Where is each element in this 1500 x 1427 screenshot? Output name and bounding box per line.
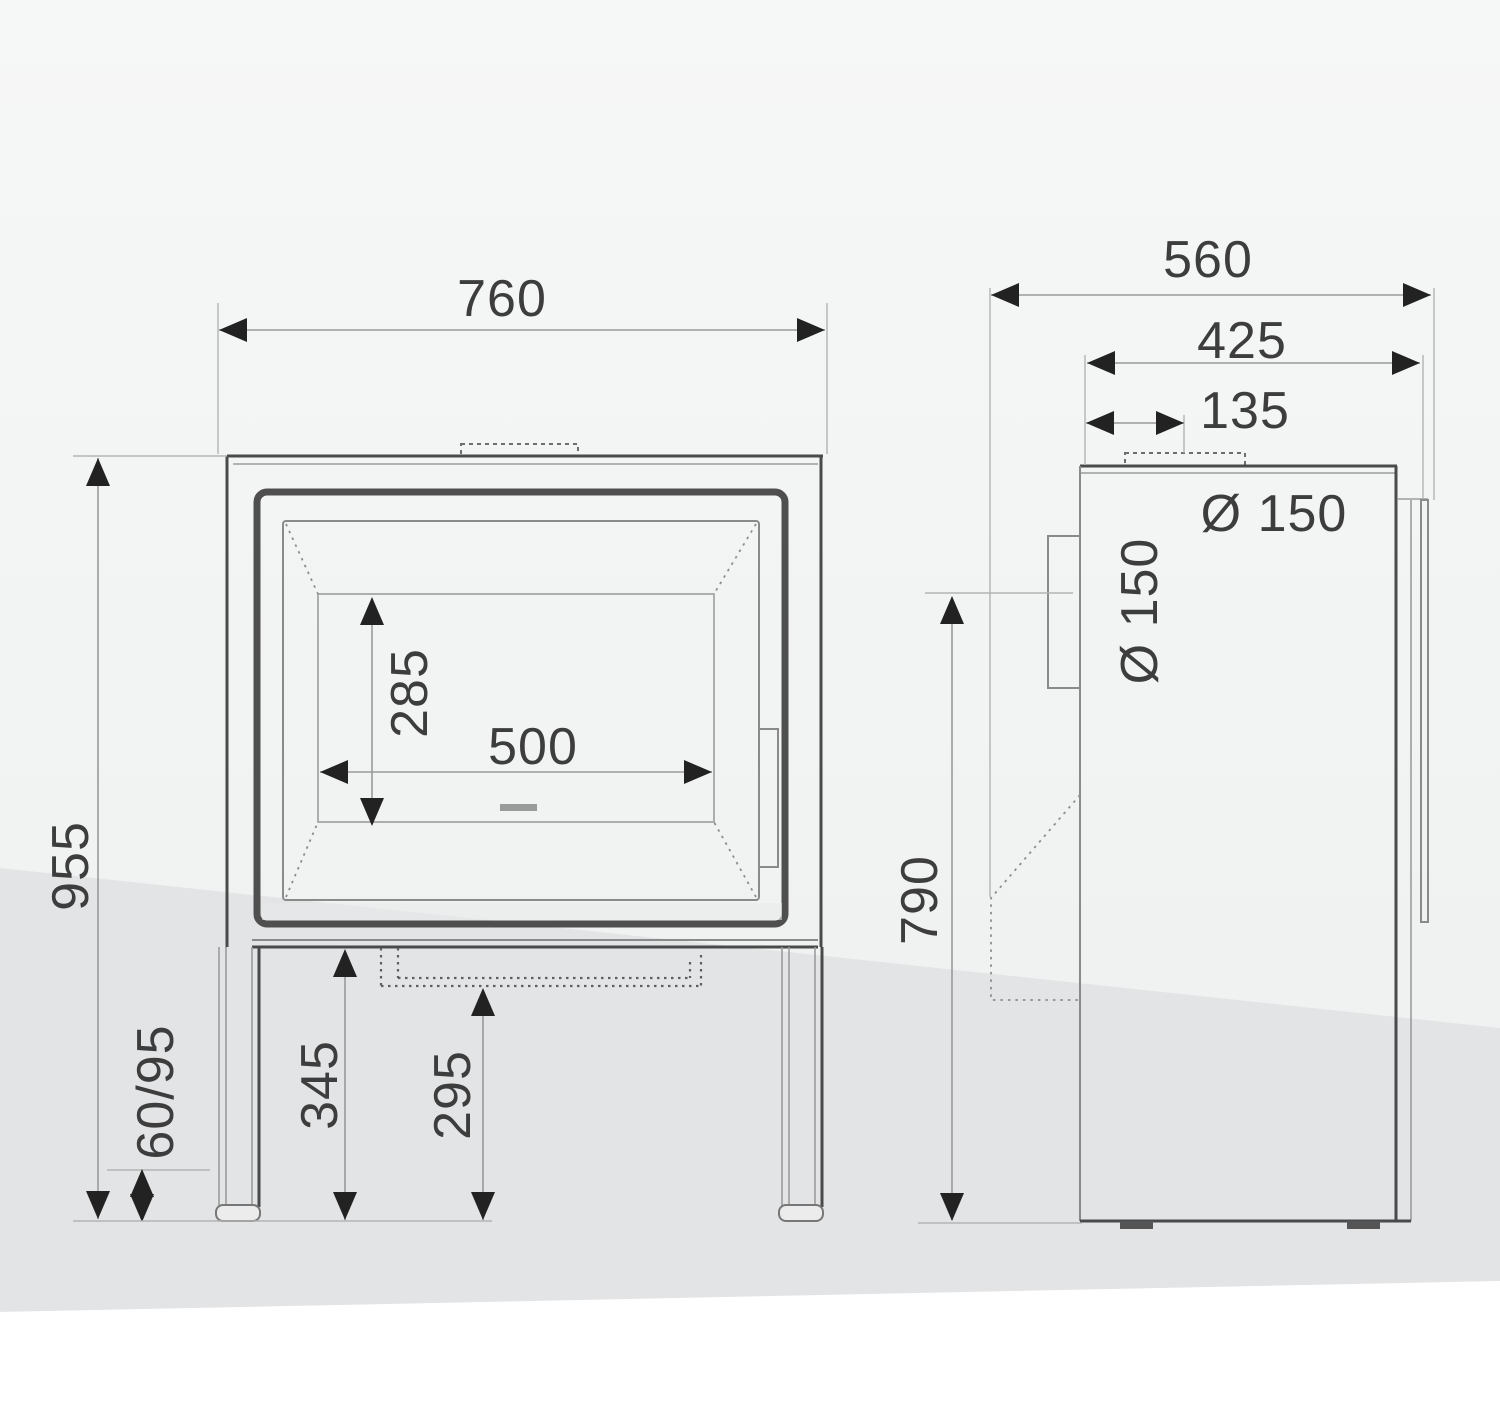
dim-label-345: 345 [291,1040,349,1130]
dim-label-295: 295 [424,1050,482,1140]
left-leg-foot [216,1205,260,1221]
label-top-flue-diameter: Ø 150 [1201,485,1348,543]
side-foot-rear [1120,1221,1153,1229]
dim-label-760: 760 [457,270,547,328]
dim-label-425: 425 [1197,312,1287,370]
stove-dimension-diagram: 760 955 285 500 345 [0,0,1500,1427]
dim-label-135: 135 [1200,382,1290,440]
label-rear-flue-diameter: Ø 150 [1111,538,1169,685]
dim-label-60-95: 60/95 [127,1024,185,1159]
right-leg-foot [779,1205,823,1221]
front-air-lever-mark [500,804,537,811]
dim-label-560: 560 [1163,231,1253,289]
dim-label-500: 500 [488,718,578,776]
dim-label-790: 790 [891,855,949,945]
front-door-lower-shading [262,903,782,920]
dim-label-285: 285 [381,648,439,738]
side-foot-front [1347,1221,1380,1229]
dim-label-955: 955 [42,821,100,911]
technical-drawing-canvas: 760 955 285 500 345 [0,0,1500,1427]
